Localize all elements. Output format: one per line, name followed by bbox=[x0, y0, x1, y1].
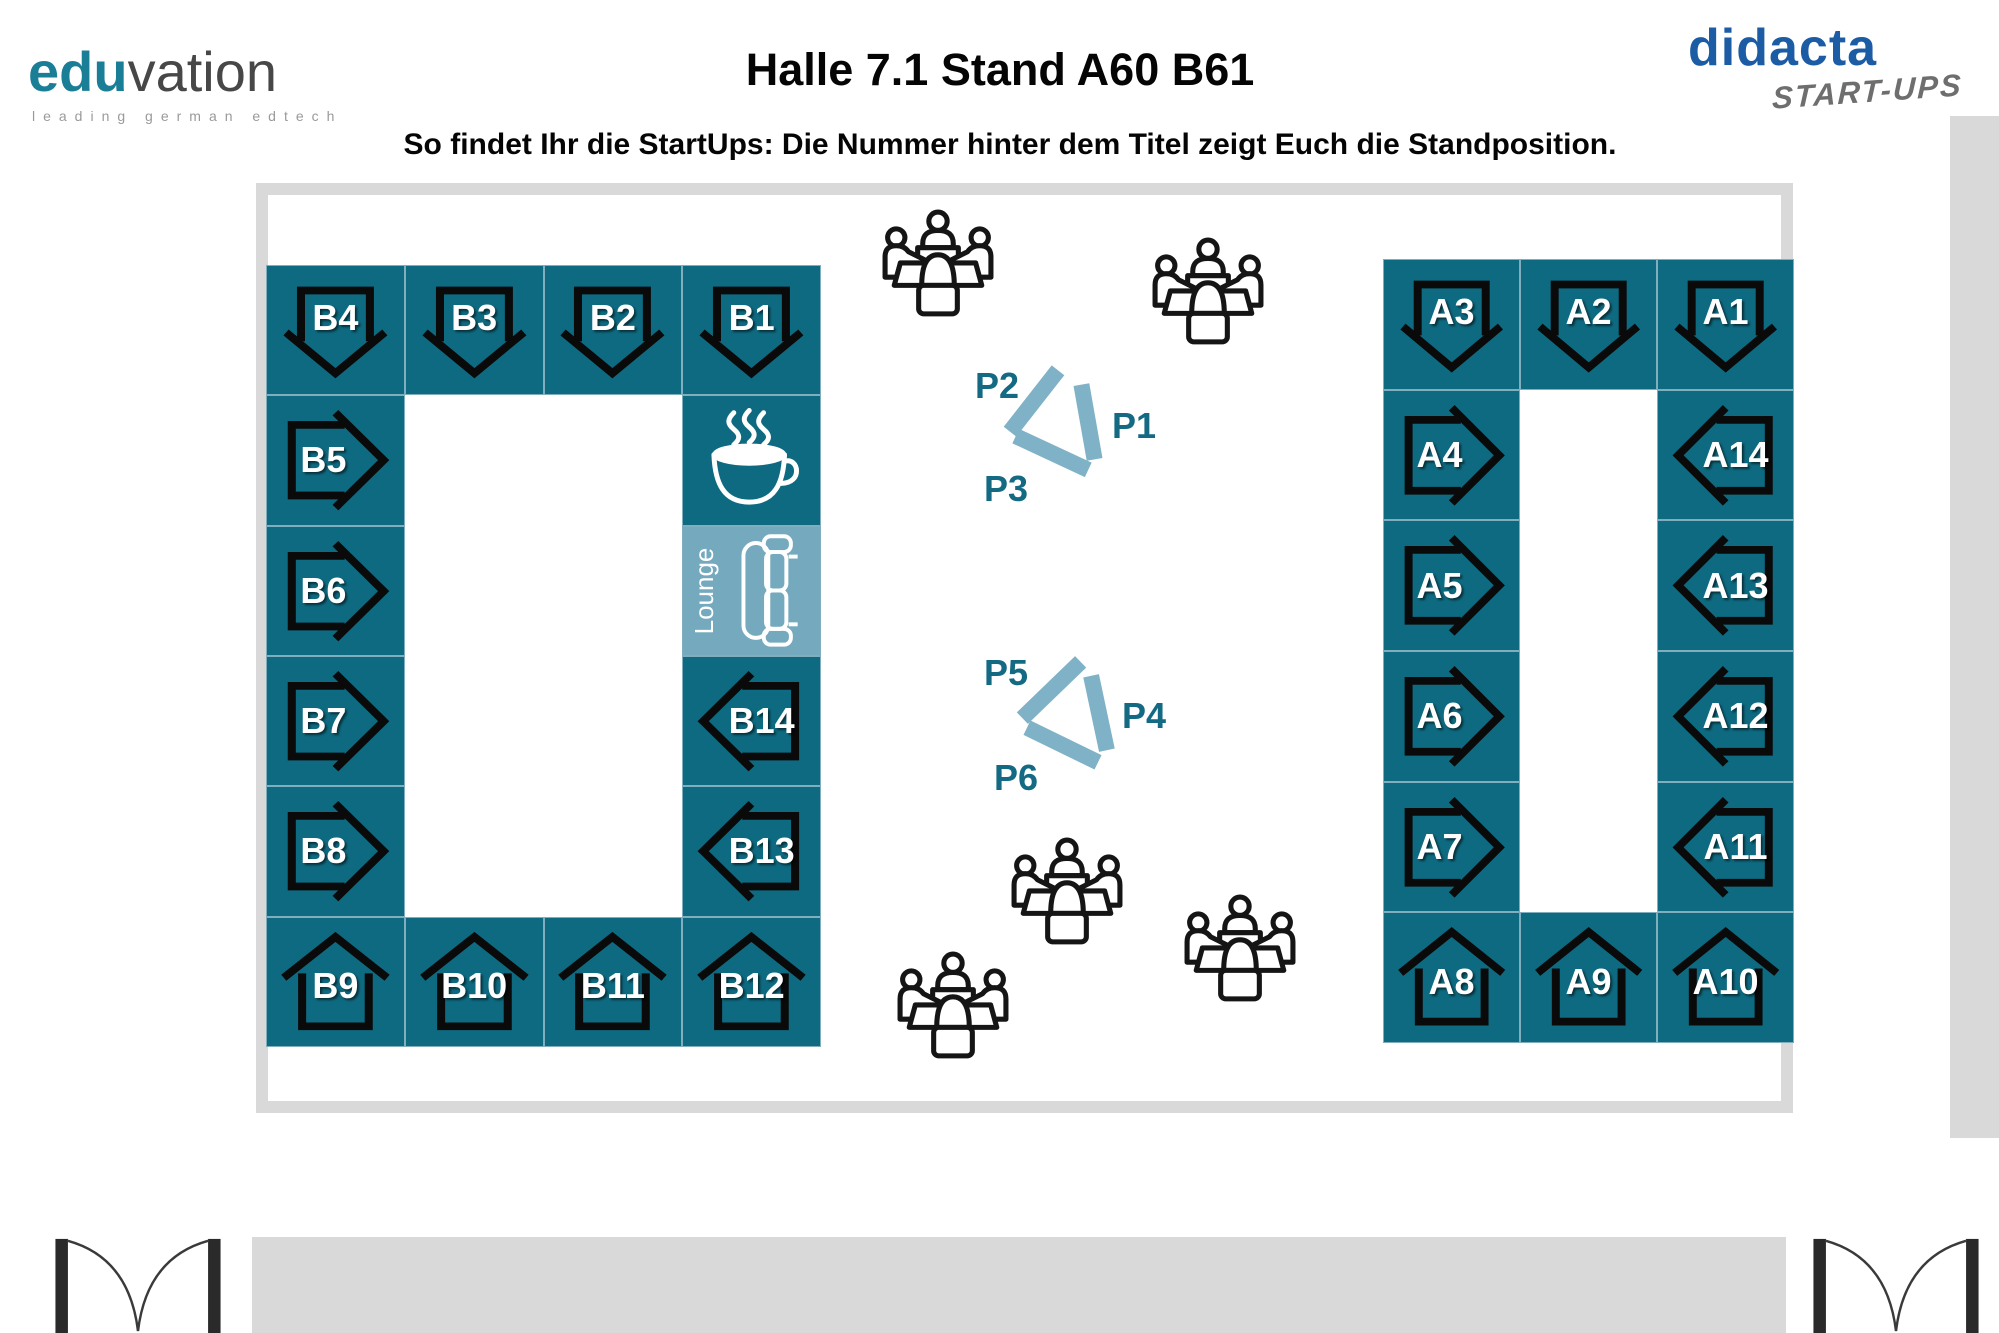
stand-tile-a8: A8 bbox=[1384, 913, 1519, 1042]
stand-number-label: A13 bbox=[1702, 565, 1768, 607]
stand-tile-a10: A10 bbox=[1658, 913, 1793, 1042]
stand-number-label: B10 bbox=[441, 965, 507, 1007]
stand-tile-b5: B5 bbox=[267, 396, 404, 524]
stand-tile-b13: B13 bbox=[683, 787, 820, 915]
eduvation-logo-vation: vation bbox=[128, 40, 277, 103]
stand-tile-a5: A5 bbox=[1384, 521, 1519, 650]
stand-tile-b2: B2 bbox=[545, 266, 682, 394]
stand-number-label: B14 bbox=[729, 700, 795, 742]
stand-tile-a4: A4 bbox=[1384, 391, 1519, 520]
people-meeting-icon bbox=[882, 208, 994, 322]
stand-number-label: A4 bbox=[1416, 434, 1462, 476]
stand-number-label: A5 bbox=[1416, 565, 1462, 607]
stand-tile-coffee bbox=[683, 396, 820, 524]
slide-page: eduvation leading german edtech Halle 7.… bbox=[0, 0, 1999, 1333]
stand-tile-b3: B3 bbox=[406, 266, 543, 394]
people-meeting-icon bbox=[1011, 836, 1123, 950]
didacta-logo: didacta bbox=[1688, 22, 1877, 74]
stand-tile-b6: B6 bbox=[267, 527, 404, 655]
stand-number-label: A6 bbox=[1416, 695, 1462, 737]
stand-tile-b14: B14 bbox=[683, 657, 820, 785]
presentation-label-p3: P3 bbox=[984, 468, 1028, 510]
presentation-label-p6: P6 bbox=[994, 757, 1038, 799]
stand-tile-b1: B1 bbox=[683, 266, 820, 394]
stand-number-label: A8 bbox=[1428, 961, 1474, 1003]
stand-tile-b7: B7 bbox=[267, 657, 404, 785]
stand-number-label: B6 bbox=[300, 570, 346, 612]
stand-tile-b10: B10 bbox=[406, 918, 543, 1046]
presentation-label-p1: P1 bbox=[1112, 405, 1156, 447]
people-meeting-group bbox=[882, 208, 994, 322]
people-meeting-icon bbox=[1184, 893, 1296, 1007]
stand-number-label: B4 bbox=[312, 297, 358, 339]
lounge-label: Lounge bbox=[689, 547, 720, 634]
stand-number-label: B9 bbox=[312, 965, 358, 1007]
stand-number-label: B8 bbox=[300, 830, 346, 872]
stand-number-label: A9 bbox=[1565, 961, 1611, 1003]
people-meeting-icon bbox=[1152, 236, 1264, 350]
stand-number-label: B5 bbox=[300, 439, 346, 481]
eduvation-logo-edu: edu bbox=[28, 40, 128, 103]
stand-tile-a6: A6 bbox=[1384, 652, 1519, 781]
people-meeting-group bbox=[1184, 893, 1296, 1007]
stand-tile-a12: A12 bbox=[1658, 652, 1793, 781]
stand-tile-b11: B11 bbox=[545, 918, 682, 1046]
stand-number-label: A12 bbox=[1702, 695, 1768, 737]
stand-tile-a11: A11 bbox=[1658, 783, 1793, 912]
page-subtitle: So findet Ihr die StartUps: Die Nummer h… bbox=[200, 128, 1820, 162]
stand-tile-a7: A7 bbox=[1384, 783, 1519, 912]
stand-block-b: B4B3B2B1B5B6LoungeB7B14B8B13B9B10B11B12 bbox=[267, 266, 820, 1046]
stand-number-label: A3 bbox=[1428, 291, 1474, 333]
stand-tile-a1: A1 bbox=[1658, 260, 1793, 389]
stand-number-label: B1 bbox=[729, 297, 775, 339]
presentation-label-p4: P4 bbox=[1122, 695, 1166, 737]
people-meeting-icon bbox=[897, 950, 1009, 1064]
presentation-label-p5: P5 bbox=[984, 652, 1028, 694]
open-book-icon bbox=[1798, 1237, 1994, 1333]
eduvation-tagline: leading german edtech bbox=[32, 108, 342, 124]
stand-block-a: A3A2A1A4A14A5A13A6A12A7A11A8A9A10 bbox=[1384, 260, 1793, 1042]
stand-tile-a14: A14 bbox=[1658, 391, 1793, 520]
stand-number-label: B13 bbox=[729, 830, 795, 872]
stand-tile-b9: B9 bbox=[267, 918, 404, 1046]
footer-bar bbox=[252, 1237, 1786, 1333]
open-book-icon bbox=[40, 1237, 236, 1333]
people-meeting-group bbox=[1152, 236, 1264, 350]
stand-number-label: B7 bbox=[300, 700, 346, 742]
stand-tile-a13: A13 bbox=[1658, 521, 1793, 650]
stand-number-label: B3 bbox=[451, 297, 497, 339]
stand-number-label: A11 bbox=[1703, 826, 1767, 868]
stand-tile-a9: A9 bbox=[1521, 913, 1656, 1042]
stand-tile-a3: A3 bbox=[1384, 260, 1519, 389]
stand-tile-b4: B4 bbox=[267, 266, 404, 394]
stand-number-label: A7 bbox=[1416, 826, 1462, 868]
stand-tile-a2: A2 bbox=[1521, 260, 1656, 389]
stand-tile-lounge: Lounge bbox=[683, 527, 820, 655]
stand-number-label: A2 bbox=[1565, 291, 1611, 333]
stand-number-label: A14 bbox=[1702, 434, 1768, 476]
stand-tile-b8: B8 bbox=[267, 787, 404, 915]
page-edge-bar bbox=[1950, 116, 1999, 1138]
stand-number-label: A10 bbox=[1692, 961, 1758, 1003]
stand-tile-b12: B12 bbox=[683, 918, 820, 1046]
stand-number-label: A1 bbox=[1702, 291, 1748, 333]
people-meeting-group bbox=[1011, 836, 1123, 950]
sofa-icon bbox=[735, 534, 806, 647]
people-meeting-group bbox=[897, 950, 1009, 1064]
page-title: Halle 7.1 Stand A60 B61 bbox=[500, 44, 1500, 96]
stand-number-label: B11 bbox=[581, 965, 645, 1007]
stand-number-label: B2 bbox=[590, 297, 636, 339]
coffee-cup-icon bbox=[694, 405, 809, 515]
eduvation-logo: eduvation bbox=[28, 44, 277, 100]
stand-number-label: B12 bbox=[719, 965, 785, 1007]
presentation-label-p2: P2 bbox=[975, 365, 1019, 407]
